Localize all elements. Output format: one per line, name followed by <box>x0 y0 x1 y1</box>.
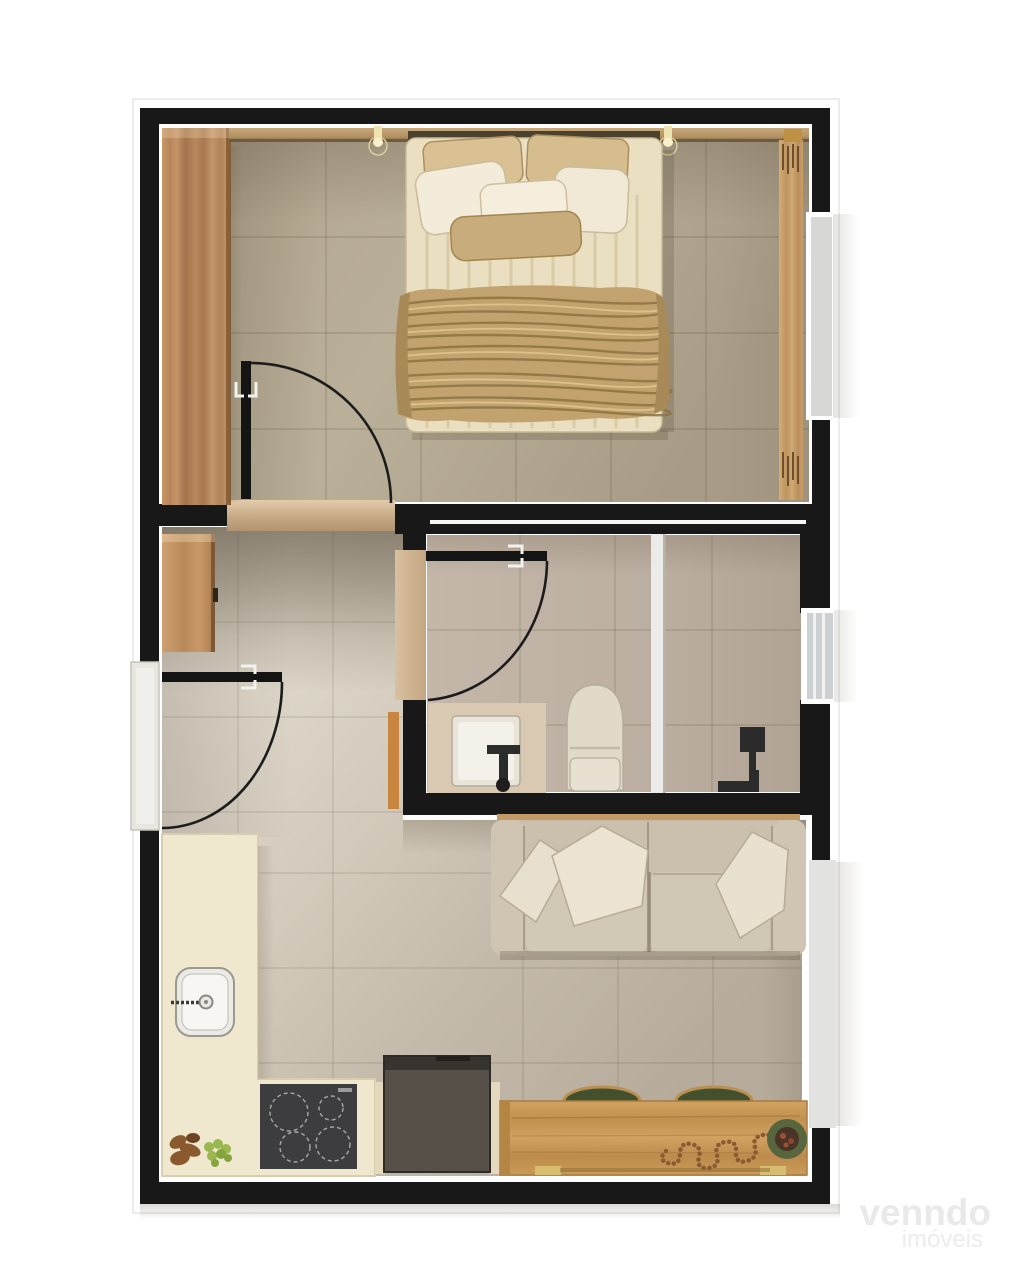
svg-text:imóveis: imóveis <box>902 1226 983 1253</box>
